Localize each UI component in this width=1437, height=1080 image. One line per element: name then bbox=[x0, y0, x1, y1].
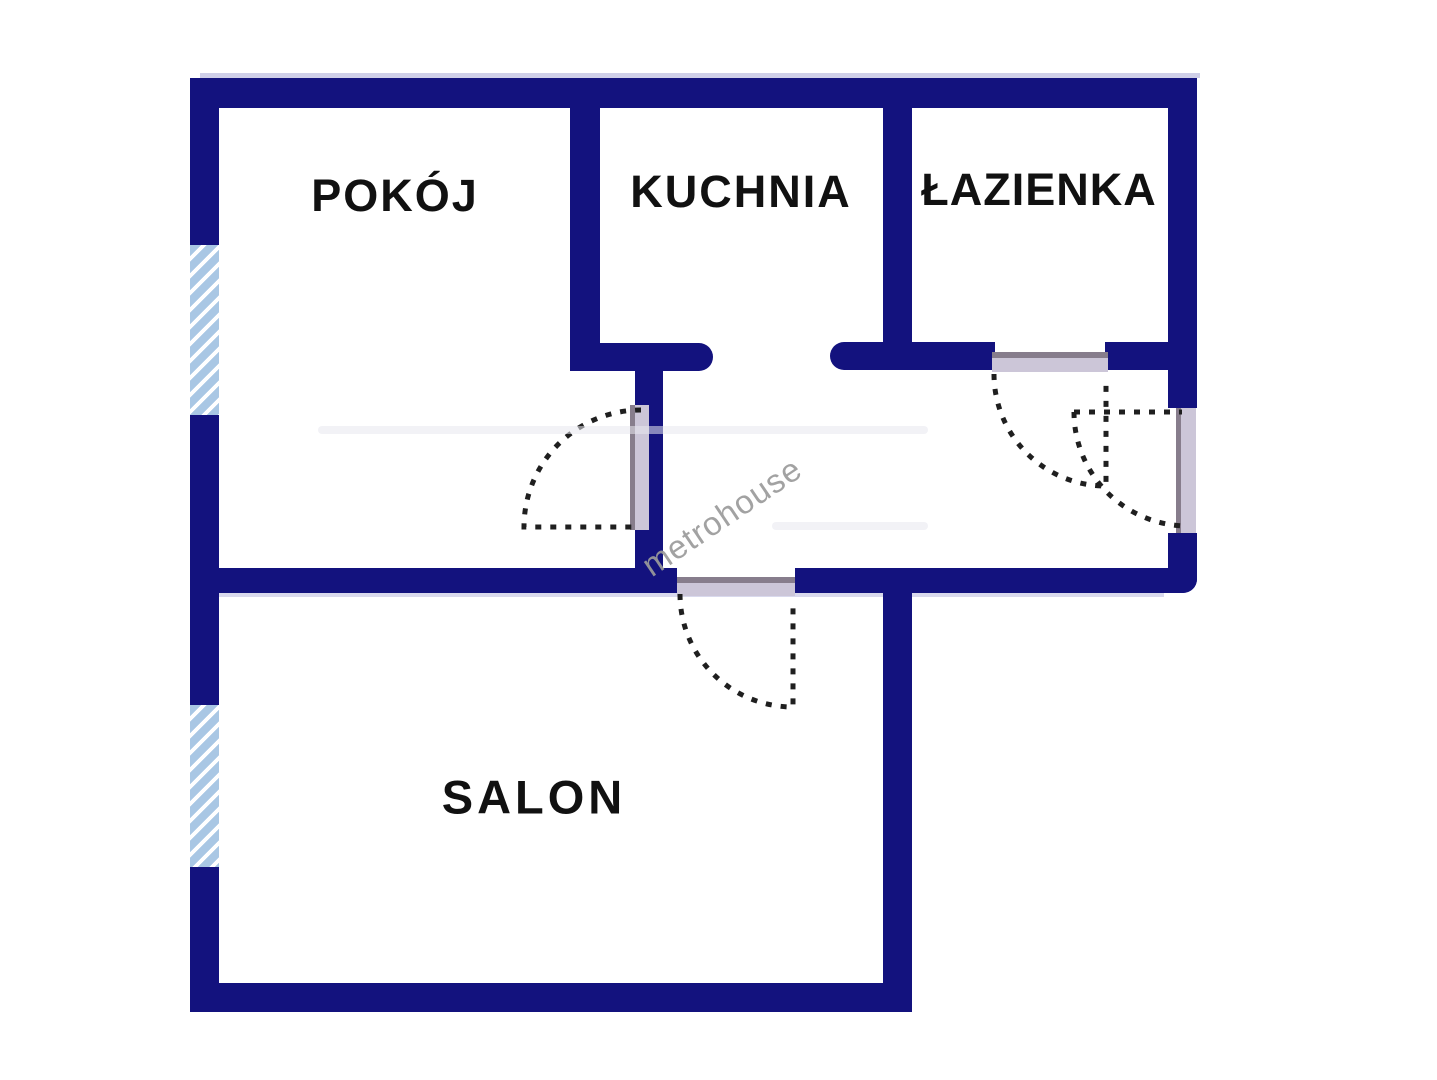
door-entrance-panel bbox=[1176, 408, 1196, 533]
window-salon-icon bbox=[190, 705, 219, 867]
door-salon-panel bbox=[677, 577, 795, 596]
watermark-artifact-band bbox=[772, 522, 928, 530]
wall-kuchnia-bottom bbox=[570, 343, 713, 371]
door-lazienka-swing-icon bbox=[994, 374, 1106, 486]
wall-outer-right-upper bbox=[1168, 78, 1197, 408]
window-pokoj-icon bbox=[190, 245, 219, 415]
room-label-kuchnia: KUCHNIA bbox=[630, 166, 852, 218]
door-lazienka-panel bbox=[992, 352, 1108, 372]
room-label-pokoj: POKÓJ bbox=[311, 170, 479, 222]
wall-pokoj-kuchnia-divider bbox=[570, 108, 600, 343]
wall-salon-right bbox=[883, 568, 912, 1012]
wall-salon-bottom bbox=[190, 983, 912, 1012]
wall-lazienka-bottom-right bbox=[1105, 342, 1168, 370]
wall-hall-bottom-right bbox=[795, 568, 1197, 593]
floorplan: POKÓJ KUCHNIA ŁAZIENKA SALON metrohouse bbox=[0, 0, 1437, 1080]
room-label-lazienka: ŁAZIENKA bbox=[921, 164, 1156, 216]
wall-kuchnia-lazienka-divider bbox=[883, 108, 912, 342]
wall-hall-bottom-left bbox=[190, 568, 677, 593]
room-label-salon: SALON bbox=[442, 770, 627, 825]
door-salon-swing-icon bbox=[680, 594, 793, 707]
wall-lazienka-bottom-left bbox=[830, 342, 995, 370]
door-pokoj-panel bbox=[630, 405, 649, 530]
wall-outer-top bbox=[190, 78, 1197, 108]
wall-outer-left bbox=[190, 78, 219, 1012]
watermark-artifact-band bbox=[318, 426, 928, 434]
door-entrance-swing-icon bbox=[1074, 412, 1188, 526]
